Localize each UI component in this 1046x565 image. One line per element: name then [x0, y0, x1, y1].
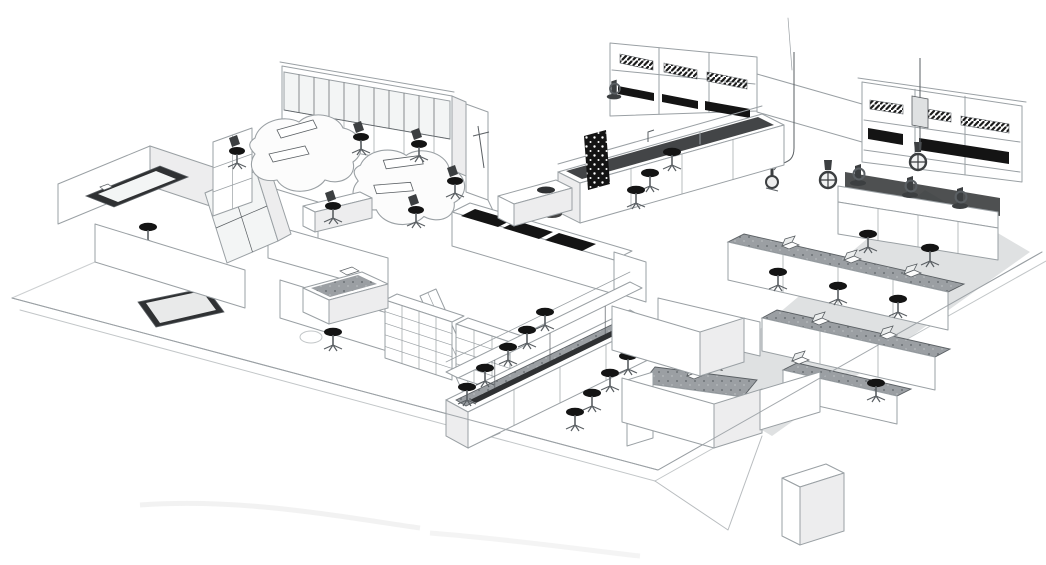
lab-floorplan-sketch	[0, 0, 1046, 565]
service-box	[912, 96, 928, 128]
stool	[566, 408, 584, 431]
stool	[324, 328, 342, 351]
low-cabinet	[303, 192, 372, 232]
island-bench-top	[542, 106, 784, 223]
wheeled-equipment	[820, 160, 836, 188]
pegboard	[584, 130, 610, 190]
freestanding-block	[782, 464, 844, 545]
faucet	[648, 130, 654, 142]
stool	[583, 389, 601, 412]
sink-counter	[498, 180, 572, 226]
sketch-canvas	[0, 0, 1046, 565]
monitor-wall	[452, 203, 646, 302]
fume-hood-bank-right	[858, 78, 1026, 182]
